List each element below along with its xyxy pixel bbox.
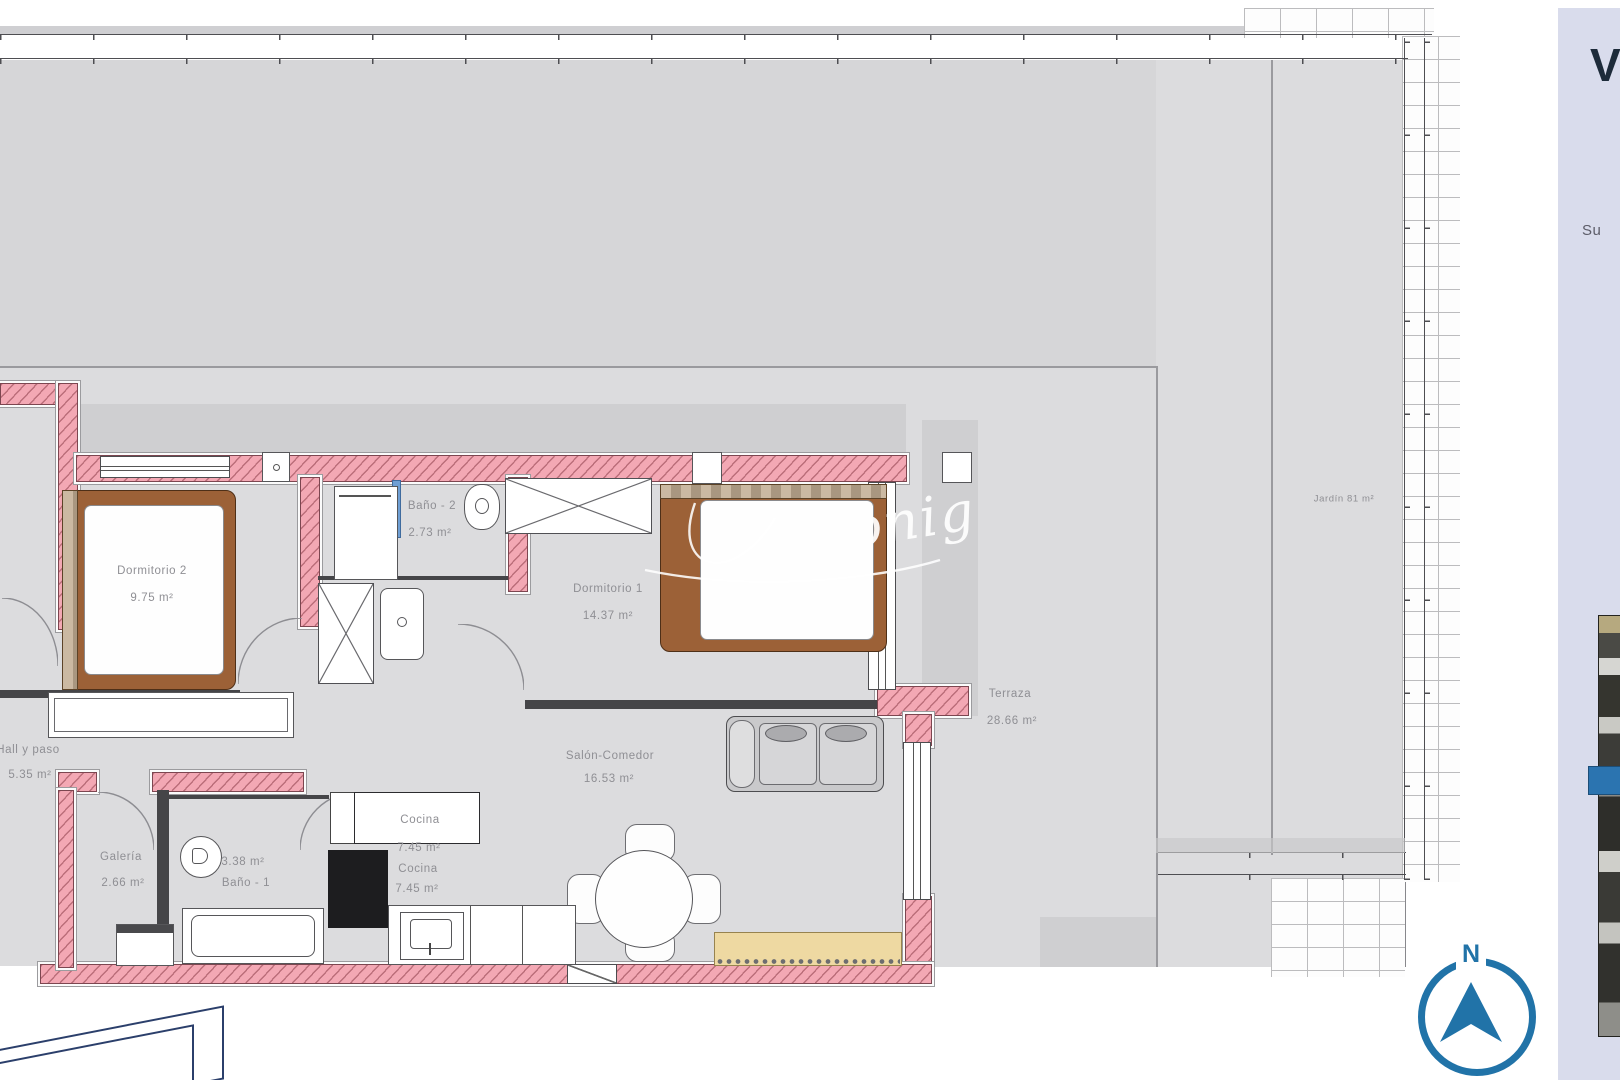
label-terraza: Terraza (989, 688, 1032, 700)
kitchen-cabinet (330, 792, 356, 844)
label-cocina-area: 7.45 m² (395, 883, 438, 895)
wardrobe-dorm1 (505, 478, 652, 534)
shower-tray-bano2 (334, 486, 398, 580)
glass-door-salon (903, 742, 931, 900)
bathtub-inner (191, 915, 315, 957)
wall-salon-east-lower (905, 896, 932, 970)
sink-faucet (429, 943, 431, 955)
compass-north-label: N (1462, 940, 1480, 969)
washer-panel (117, 925, 173, 933)
washbasin-bano2 (380, 588, 424, 660)
shower-enclosure (318, 583, 374, 684)
shower-bar (339, 495, 391, 497)
label-jardin: Jardín 81 m² (1314, 494, 1375, 505)
railing-top-outer (0, 34, 1432, 40)
garden-left-line (1156, 366, 1158, 967)
railing-garden-bottom-2 (1156, 874, 1406, 880)
label-terraza-area: 28.66 m² (987, 715, 1037, 727)
door-arc-galeria (98, 792, 154, 850)
sink-bowl (410, 919, 452, 949)
toilet-glyph (192, 848, 208, 864)
label-hall-area: 5.35 m² (8, 769, 51, 781)
sofa (726, 716, 884, 792)
door-arc-dorm2 (238, 618, 302, 684)
label-galeria: Galería (100, 851, 142, 863)
thumbnail-blue-band (1588, 766, 1620, 795)
building-shadow-bottom (1040, 917, 1156, 967)
wall-terrace-step (877, 686, 969, 716)
label-salon: Salón-Comedor (566, 750, 654, 762)
partition-dorm1-salon (525, 700, 877, 709)
toilet-bowl (475, 498, 489, 514)
kitchen-sink-unit (400, 912, 464, 960)
label-bano1-area: 3.38 m² (221, 856, 264, 868)
label-dormitorio2: Dormitorio 2 (117, 565, 187, 577)
washer-galeria (116, 924, 174, 966)
floorplan-page: Dormitorio 2 9.75 m² Baño - 2 2.73 m² Do… (0, 0, 1620, 1080)
terrace-boundary-line (0, 366, 1156, 368)
label-bano2-area: 2.73 m² (408, 527, 451, 539)
paving-right-strip (1402, 36, 1460, 882)
label-salon-area: 16.53 m² (584, 773, 634, 785)
hall-cabinet-inner (54, 698, 288, 732)
sofa-pillow (825, 725, 867, 742)
label-hall: Hall y paso (0, 744, 60, 756)
wall-dorm2-right (300, 477, 320, 627)
dining-table (595, 850, 693, 948)
label-bano1: Baño - 1 (222, 877, 270, 889)
window-dorm2 (100, 456, 230, 478)
building-photo-thumbnail (1598, 615, 1620, 1037)
page-margin (930, 967, 1156, 1080)
bathtub-bano1 (182, 908, 324, 964)
vent-glyph (273, 464, 280, 471)
threshold-opening (567, 964, 617, 984)
upper-terrace-zone (0, 60, 1156, 366)
label-dormitorio1: Dormitorio 1 (573, 583, 643, 595)
sofa-pillow (765, 725, 807, 742)
garden-edge-shadow (1156, 838, 1405, 853)
door-arc-entry (2, 598, 58, 666)
garden-divider-line (1271, 60, 1273, 855)
railing-right-outer (1404, 38, 1410, 880)
toilet-bano2 (464, 484, 500, 530)
hall-cabinet (48, 692, 294, 738)
bed-dorm2-mattress (84, 505, 224, 675)
vent-box (262, 452, 290, 482)
panel-subtitle-fragment: Su (1582, 222, 1601, 239)
bed-dorm2-headboard (62, 490, 78, 690)
wall-hall-galeria-b (152, 772, 304, 792)
label-cocina-counter: Cocina (400, 814, 439, 826)
label-cocina-counter-area: 7.45 m² (397, 842, 440, 854)
wall-spur-left (0, 383, 65, 405)
label-dormitorio2-area: 9.75 m² (130, 592, 173, 604)
building-shadow-top (76, 404, 906, 455)
toilet-bano1 (180, 836, 222, 878)
panel-title-fragment: V (1590, 38, 1620, 92)
plot-edge-band (0, 26, 1432, 34)
sofa-arm (729, 720, 755, 788)
sideboard-trim (716, 958, 900, 966)
wall-hall-galeria-a (58, 772, 97, 792)
label-cocina: Cocina (398, 863, 437, 875)
label-dormitorio1-area: 14.37 m² (583, 610, 633, 622)
basin-drain (397, 617, 407, 627)
door-arc-dorm1 (458, 624, 524, 690)
label-galeria-area: 2.66 m² (101, 877, 144, 889)
label-bano2: Baño - 2 (408, 500, 456, 512)
wall-galeria-left (58, 790, 74, 968)
railing-right-inner (1424, 38, 1430, 880)
paving-bottom-patch (1271, 878, 1405, 977)
shaft-block (328, 850, 388, 928)
railing-top-inner (0, 58, 1408, 64)
wall-bottom (40, 964, 932, 984)
